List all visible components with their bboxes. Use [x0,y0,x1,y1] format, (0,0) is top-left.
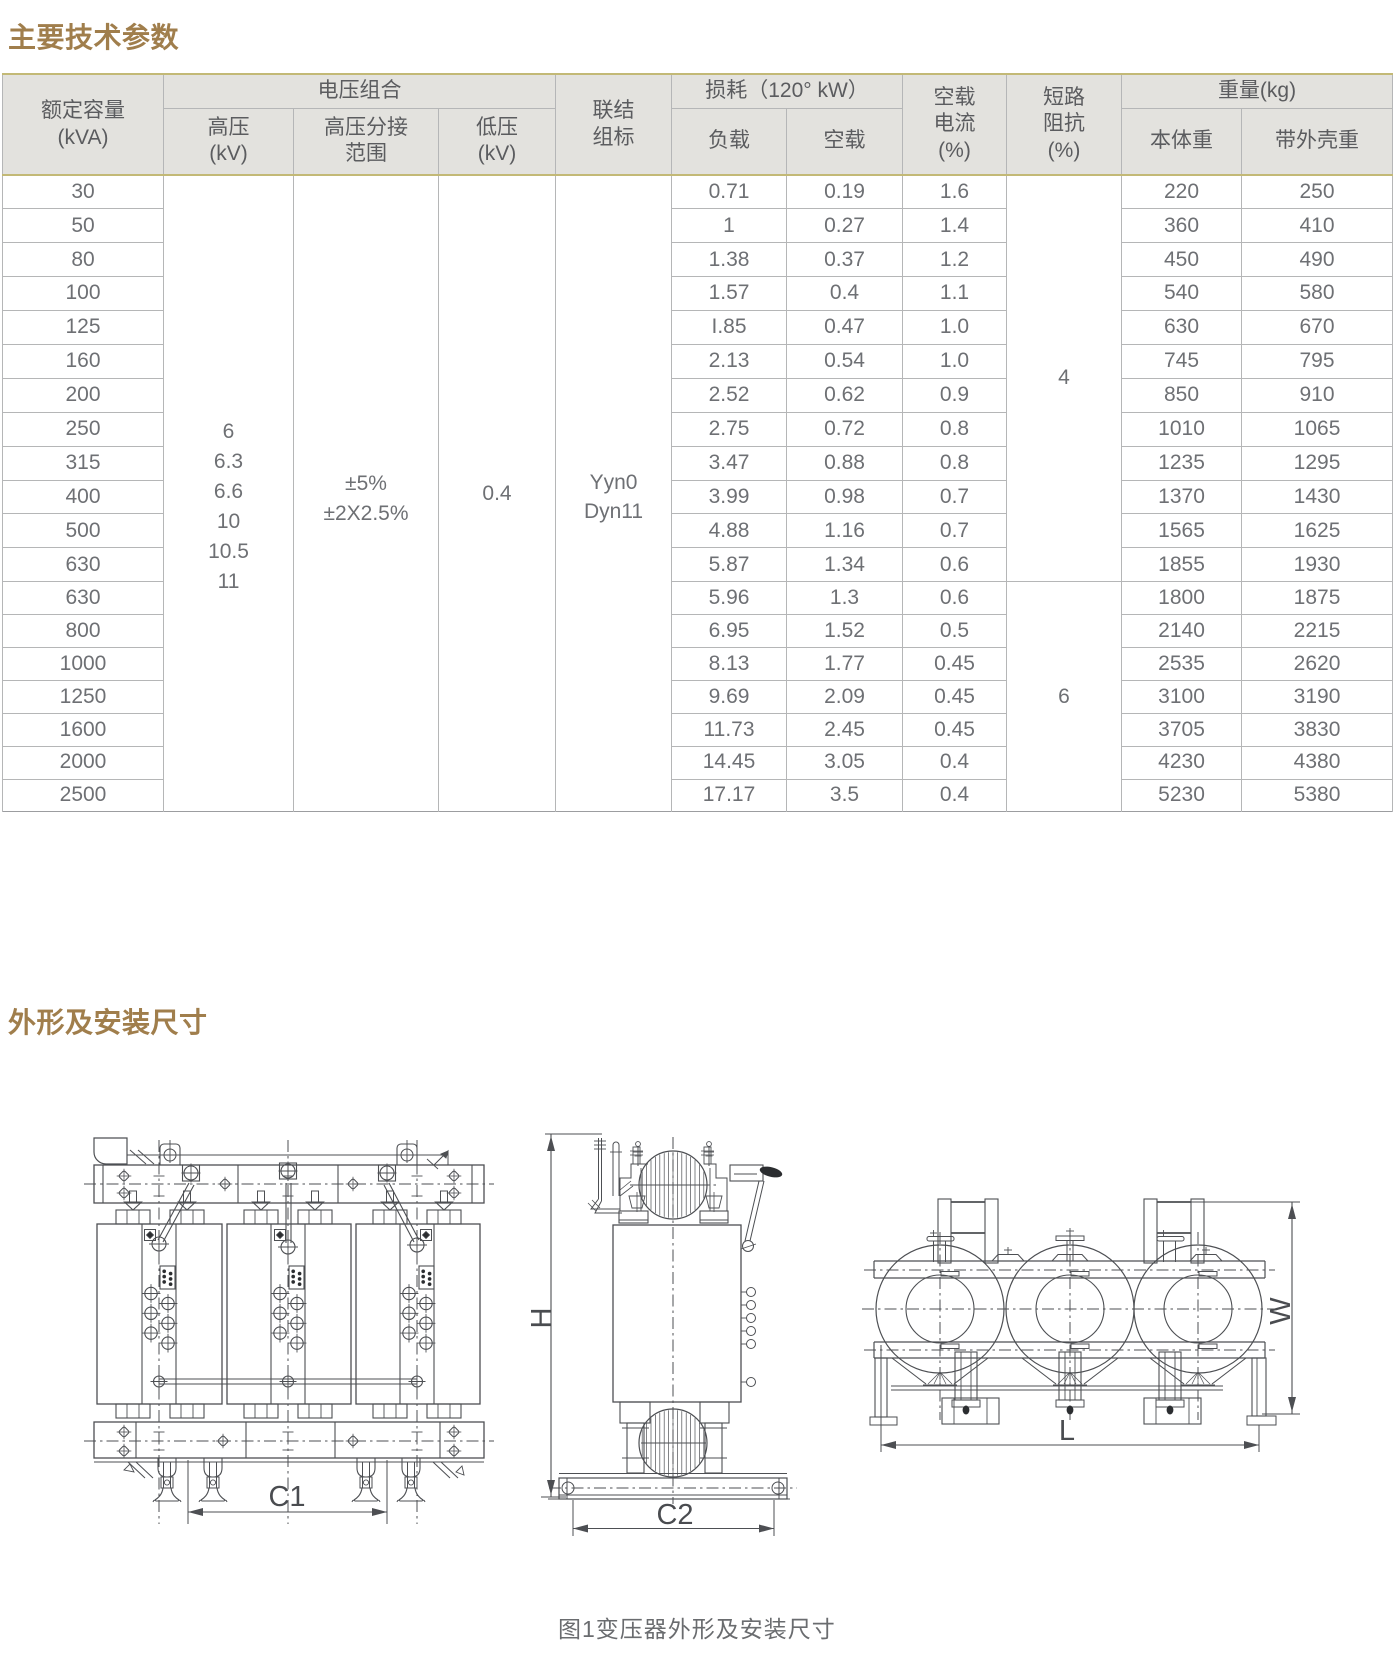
svg-text:W: W [1265,1297,1297,1325]
svg-text:C2: C2 [656,1499,693,1531]
svg-text:C1: C1 [268,1481,305,1513]
svg-text:H: H [526,1308,558,1329]
svg-text:L: L [1059,1415,1075,1447]
